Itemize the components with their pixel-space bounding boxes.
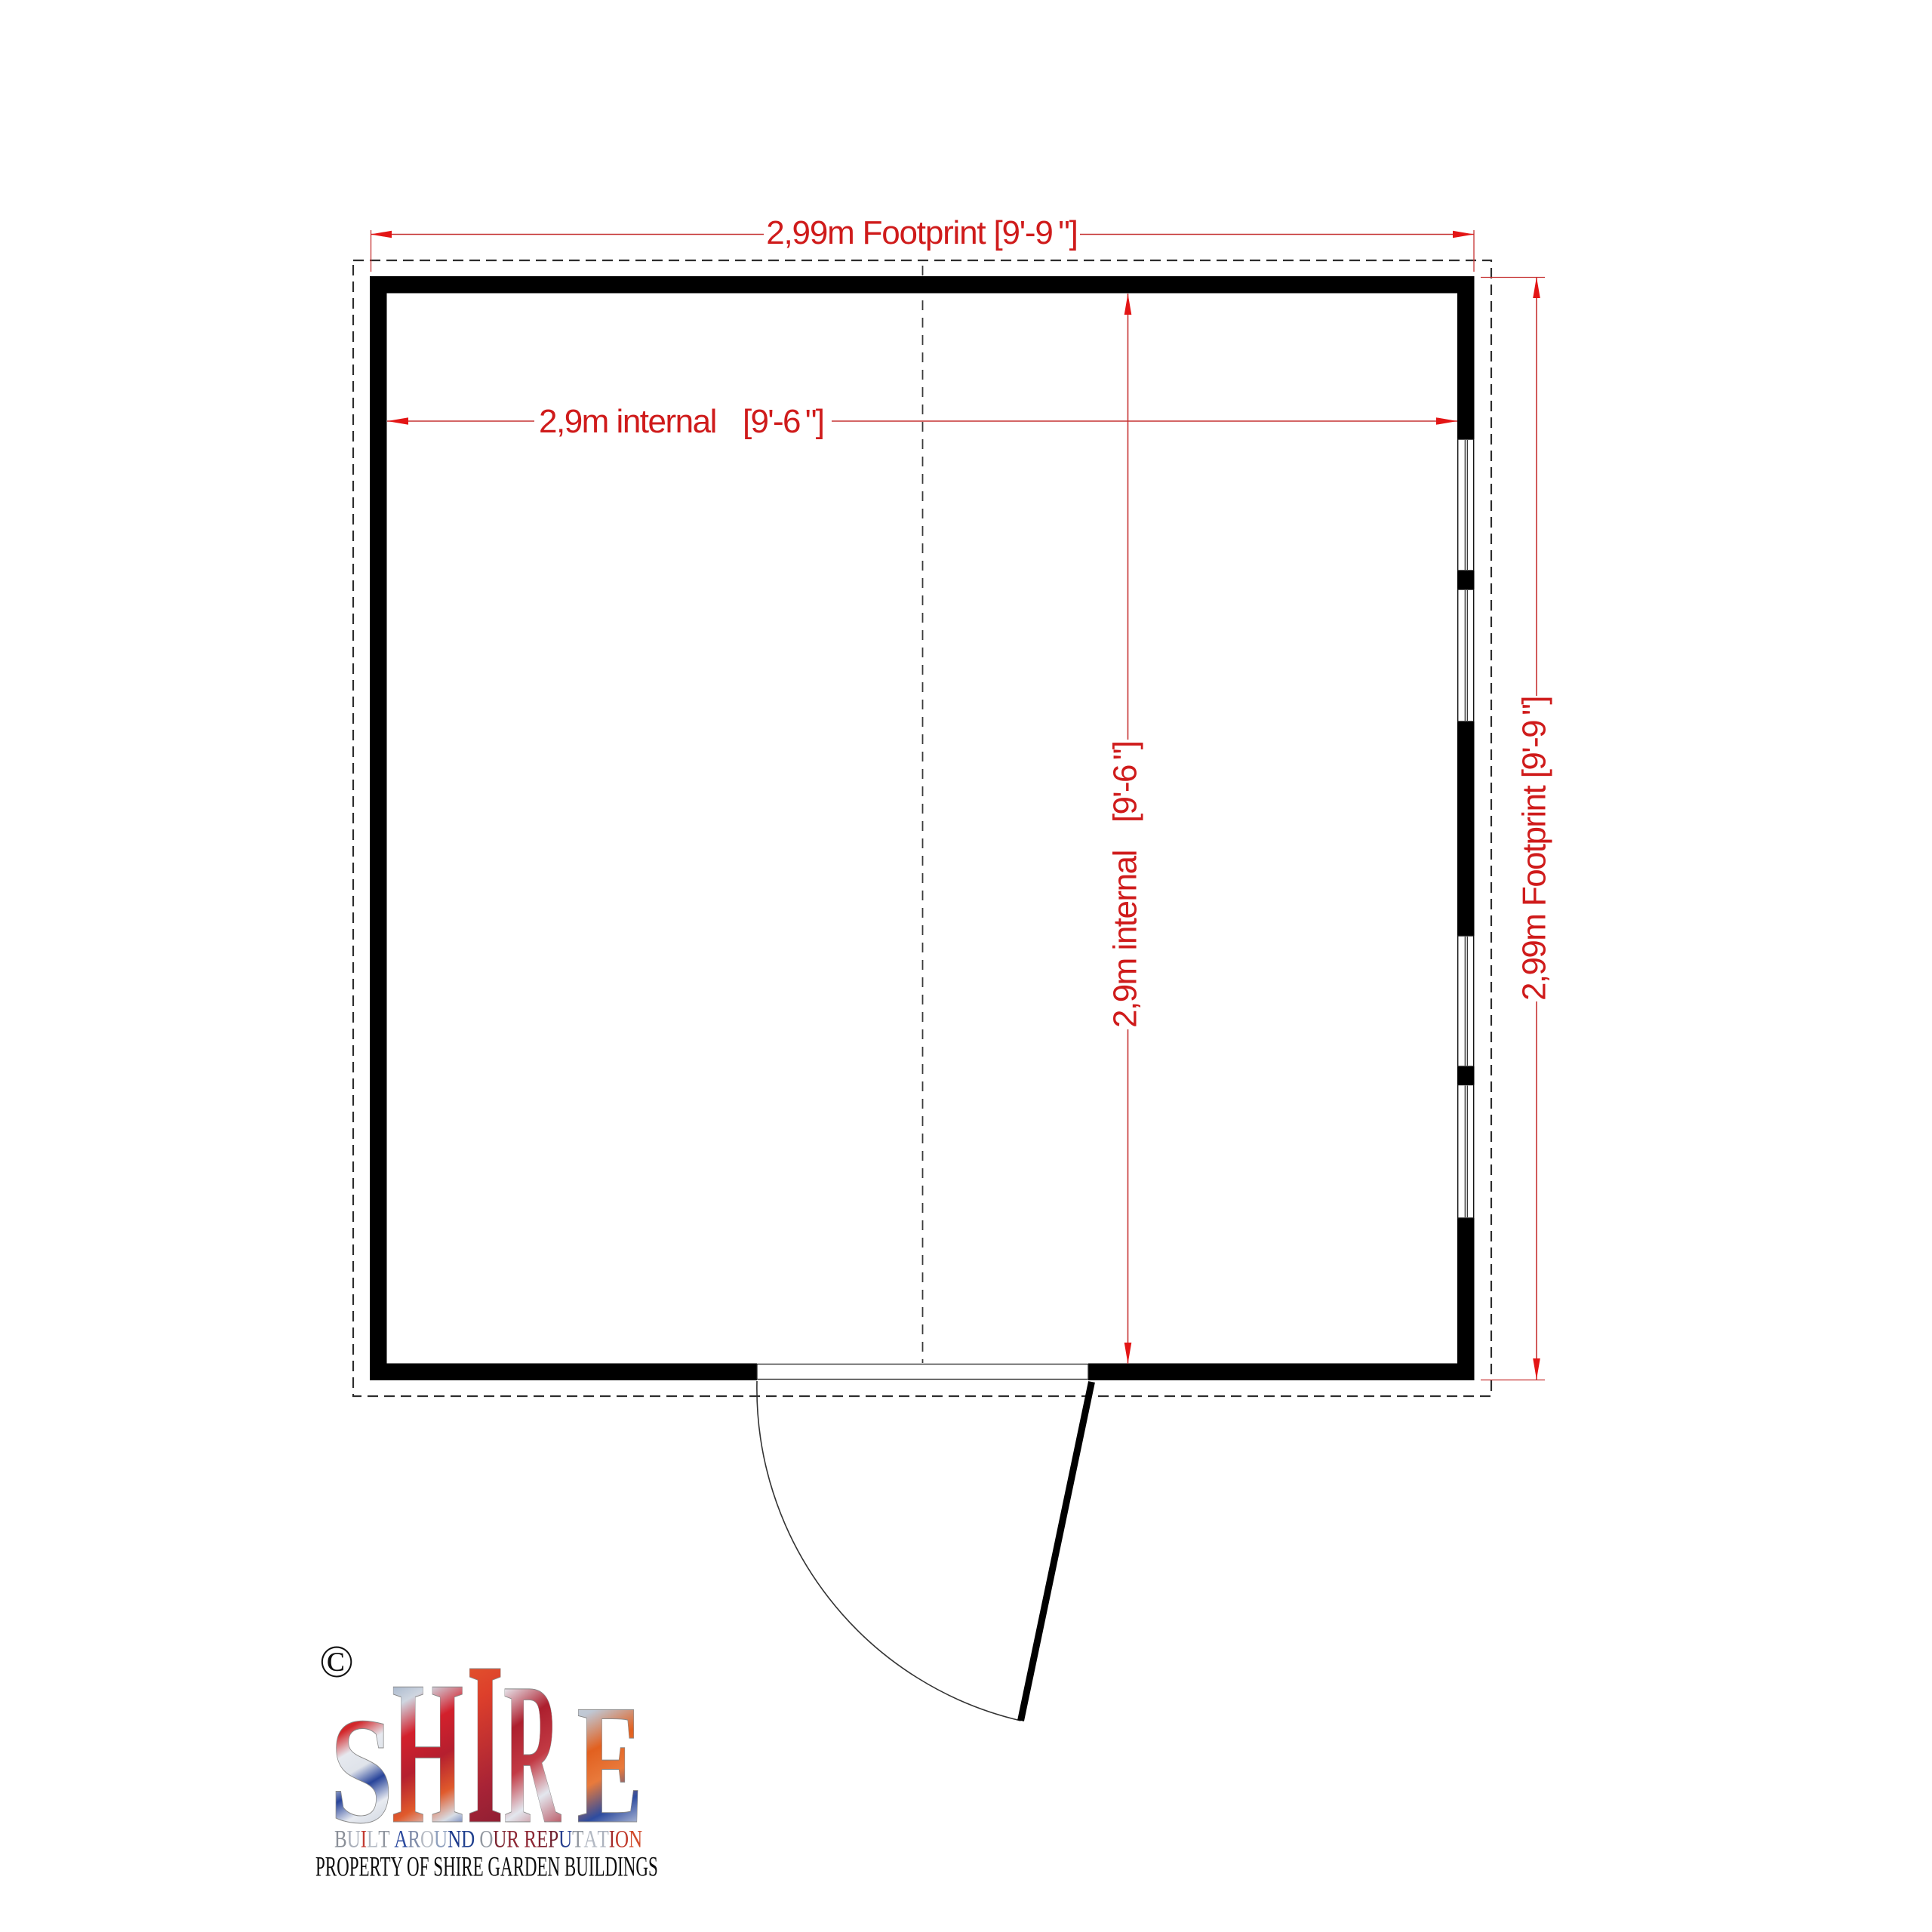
svg-text:2,99m Footprint [9'-9 "]: 2,99m Footprint [9'-9 "] (766, 214, 1077, 251)
svg-text:BUILT AROUND OUR REPUTATION: BUILT AROUND OUR REPUTATION (334, 1826, 642, 1853)
svg-text:2,99m Footprint [9'-9 "]: 2,99m Footprint [9'-9 "] (1516, 697, 1553, 1001)
svg-text:2,9m internal: 2,9m internal (1107, 851, 1144, 1028)
svg-text:PROPERTY OF SHIRE GARDEN BUILD: PROPERTY OF SHIRE GARDEN BUILDINGS (315, 1851, 658, 1882)
svg-text:[9'-6 "]: [9'-6 "] (1107, 742, 1144, 823)
svg-text:[9'-6 "]: [9'-6 "] (743, 403, 823, 440)
svg-text:2,9m internal: 2,9m internal (539, 403, 716, 440)
svg-text:©: © (319, 1637, 354, 1687)
